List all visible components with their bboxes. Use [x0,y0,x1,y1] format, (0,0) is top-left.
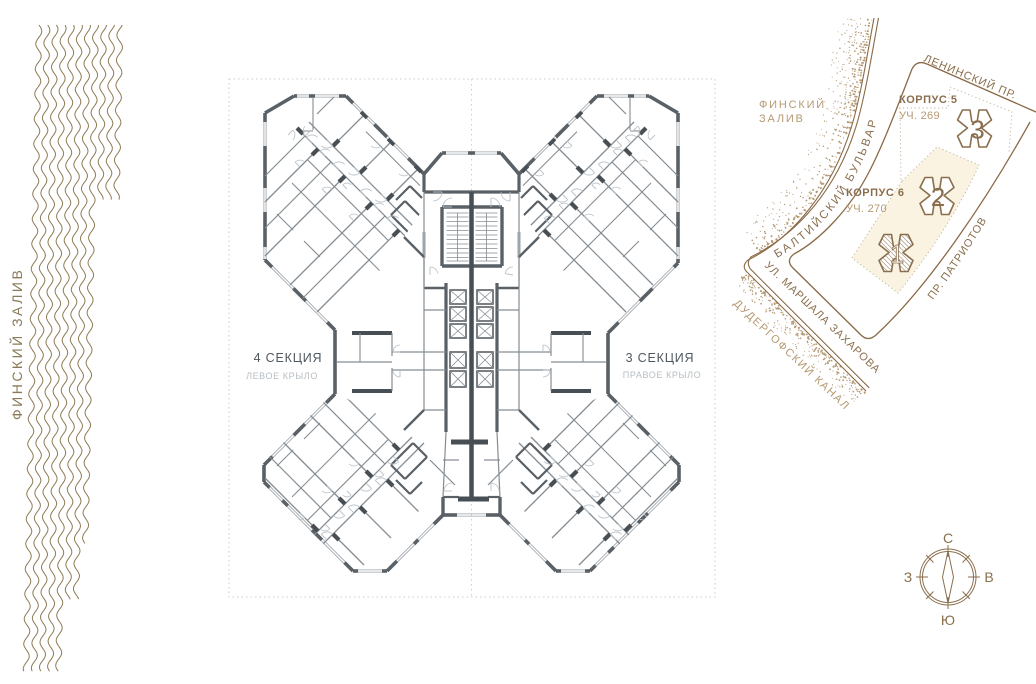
svg-text:4 СЕКЦИЯ: 4 СЕКЦИЯ [254,351,323,365]
svg-text:З: З [904,569,912,585]
svg-text:ПРАВОЕ КРЫЛО: ПРАВОЕ КРЫЛО [623,370,701,380]
svg-text:ЛЕВОЕ КРЫЛО: ЛЕВОЕ КРЫЛО [246,371,318,381]
svg-text:3 СЕКЦИЯ: 3 СЕКЦИЯ [626,351,695,365]
svg-text:УЧ. 269: УЧ. 269 [899,110,940,122]
svg-text:КОРПУС 5: КОРПУС 5 [899,94,957,106]
svg-text:3: 3 [970,115,984,145]
svg-text:КОРПУС 6: КОРПУС 6 [846,187,904,199]
svg-text:С: С [943,530,953,546]
svg-text:Ю: Ю [941,612,955,628]
svg-text:1: 1 [890,239,904,269]
svg-text:УЧ. 270: УЧ. 270 [846,203,887,215]
svg-text:ФИНСКИЙ ЗАЛИВ: ФИНСКИЙ ЗАЛИВ [8,268,25,420]
svg-text:ФИНСКИЙ: ФИНСКИЙ [759,98,826,111]
svg-text:В: В [984,569,993,585]
svg-text:ЗАЛИВ: ЗАЛИВ [759,113,805,125]
svg-text:2: 2 [931,182,945,212]
